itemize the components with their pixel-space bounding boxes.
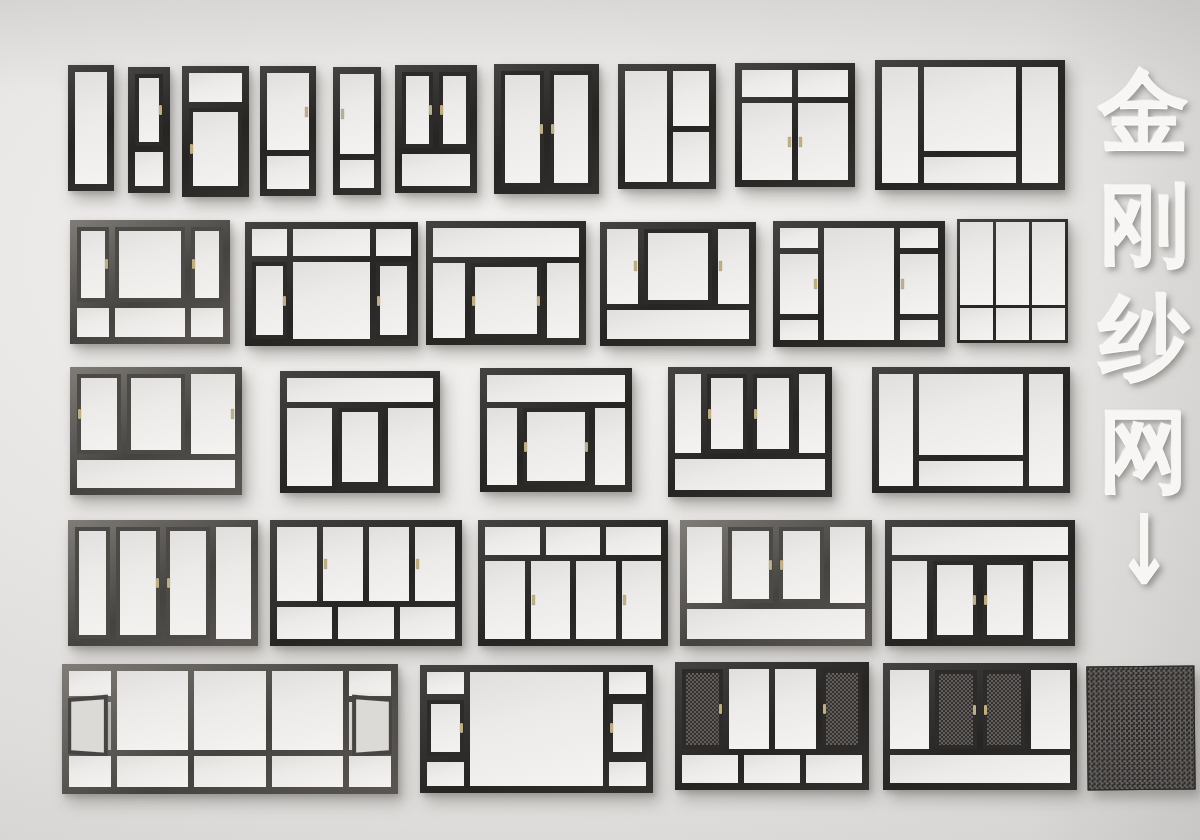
window-frame-22 [68,520,258,646]
window-handle [984,595,987,605]
glass-pane [673,132,709,182]
glass-pane [879,374,913,486]
glass-pane [77,227,109,302]
glass-pane [69,671,111,696]
window-frame-19 [480,368,632,492]
window-frame-18 [280,371,440,493]
vertical-title: 金 刚 纱 网 ↓ [1094,62,1194,581]
glass-pane [501,71,544,187]
window-frame-24 [478,520,668,646]
glass-pane [682,755,738,783]
window-handle [769,560,772,570]
glass-pane [338,408,383,486]
glass-pane [960,222,993,305]
glass-pane [687,527,722,603]
glass-pane [607,310,749,339]
window-handle [105,259,108,269]
window-handle [440,105,443,115]
glass-pane [609,672,646,694]
glass-pane [687,609,865,639]
title-char-1: 金 [1099,62,1189,159]
window-handle [460,723,463,733]
glass-pane [376,229,411,256]
glass-pane [798,70,848,97]
window-handle [416,559,419,569]
glass-pane [547,263,579,338]
glass-pane [780,320,818,340]
glass-pane [485,527,540,555]
glass-pane [272,756,344,787]
glass-pane [806,755,862,783]
glass-pane [189,108,242,190]
glass-pane [728,527,773,603]
glass-pane [470,672,602,786]
window-frame-10 [875,60,1065,190]
glass-pane [729,669,770,749]
glass-pane [487,408,517,485]
window-frame-20 [668,367,832,497]
glass-pane [116,527,160,639]
glass-pane [960,308,993,340]
glass-pane [135,152,163,186]
window-handle [532,595,535,605]
glass-pane [338,607,393,639]
window-frame-4 [260,66,316,196]
mesh-pane [935,670,977,749]
glass-pane [882,67,918,183]
glass-pane [625,71,667,182]
window-frame-8 [618,64,716,189]
window-handle [324,559,327,569]
window-handle [719,704,722,714]
glass-pane [644,229,712,304]
wall: 金 刚 纱 网 ↓ [0,0,1200,840]
glass-pane [1022,67,1058,183]
glass-pane [531,561,571,639]
window-frame-27 [62,664,398,794]
window-handle [540,124,543,134]
glass-pane [277,607,332,639]
glass-pane [890,755,1070,783]
window-handle [190,144,193,154]
glass-pane [267,73,309,150]
glass-pane [117,756,189,787]
glass-pane [340,160,374,188]
glass-pane [376,262,411,339]
glass-pane [675,459,825,490]
open-casement [349,702,391,750]
glass-pane [267,156,309,189]
glass-pane [252,229,287,256]
window-handle [551,124,554,134]
window-frame-30 [883,663,1077,790]
glass-pane [576,561,616,639]
glass-pane [1031,670,1070,749]
window-frame-14 [600,222,756,346]
window-handle [719,261,722,271]
window-handle [231,409,234,419]
window-handle [780,560,783,570]
glass-pane [996,222,1029,305]
window-frame-25 [680,520,872,646]
glass-pane [607,229,638,304]
window-frame-1 [68,65,114,191]
window-handle [192,259,195,269]
glass-pane [1033,561,1068,639]
mesh-pane [983,670,1025,749]
window-frame-21 [872,367,1070,493]
window-handle [973,595,976,605]
glass-pane [194,756,266,787]
glass-pane [983,561,1027,639]
glass-pane [744,755,800,783]
open-sash [352,694,392,757]
glass-pane [919,374,1022,455]
glass-pane [402,154,470,186]
window-frame-12 [245,222,418,346]
window-handle [537,296,540,306]
window-handle [610,723,613,733]
glass-pane [415,527,455,601]
glass-pane [439,72,470,148]
window-frame-29 [675,662,869,790]
window-frame-2 [128,67,170,193]
glass-pane [349,756,391,787]
glass-pane [191,227,223,302]
glass-pane [252,262,287,339]
window-handle [341,109,344,119]
mesh-swatch [1086,665,1195,790]
glass-pane [892,527,1068,555]
glass-pane [996,308,1029,340]
window-handle [623,595,626,605]
glass-pane [400,607,455,639]
glass-pane [900,320,938,340]
glass-pane [433,228,579,257]
glass-pane [753,374,793,453]
glass-pane [892,561,927,639]
window-frame-9 [735,63,855,187]
window-handle [283,296,286,306]
window-handle [973,705,976,715]
glass-pane [191,308,223,337]
window-frame-7 [494,64,599,194]
window-frame-17 [70,367,242,495]
glass-pane [77,374,121,454]
window-frame-15 [773,221,945,347]
glass-pane [293,262,369,339]
glass-pane [135,74,163,146]
window-frame-16 [957,219,1068,343]
glass-pane [900,254,938,314]
glass-pane [775,669,816,749]
glass-pane [433,263,465,338]
glass-pane [272,671,344,750]
glass-pane [69,756,111,787]
window-handle [788,137,791,147]
open-sash [68,694,108,757]
window-handle [377,296,380,306]
window-handle [823,704,826,714]
glass-pane [606,527,661,555]
glass-pane [900,228,938,248]
glass-pane [742,103,792,180]
window-frame-13 [426,221,586,345]
glass-pane [287,378,433,402]
window-handle [984,705,987,715]
window-handle [78,409,81,419]
glass-pane [609,762,646,786]
glass-pane [369,527,409,601]
glass-pane [824,228,894,340]
window-frame-23 [270,520,462,646]
glass-pane [487,375,625,402]
glass-pane [75,72,107,184]
glass-pane [1032,308,1065,340]
glass-pane [890,670,929,749]
glass-pane [427,700,464,755]
window-handle [754,409,757,419]
window-handle [524,442,527,452]
window-handle [472,296,475,306]
window-frame-5 [333,67,381,195]
glass-pane [595,408,625,485]
glass-pane [115,308,185,337]
glass-pane [194,671,266,750]
title-char-2: 刚 [1099,175,1189,272]
glass-pane [523,408,589,485]
window-frame-3 [182,66,249,197]
window-handle [429,105,432,115]
glass-pane [117,671,189,750]
glass-pane [780,228,818,248]
window-handle [156,578,159,588]
glass-pane [924,67,1016,151]
window-handle [167,578,170,588]
glass-pane [287,408,332,486]
glass-pane [277,527,317,601]
open-casement [69,702,111,750]
title-char-4: 网 [1099,402,1189,499]
glass-pane [216,527,251,639]
window-handle [585,442,588,452]
glass-pane [323,527,363,601]
glass-pane [485,561,525,639]
glass-pane [293,229,369,256]
window-handle [814,279,817,289]
glass-pane [388,408,433,486]
window-handle [159,105,162,115]
glass-pane [779,527,824,603]
window-handle [799,137,802,147]
glass-pane [550,71,593,187]
glass-pane [673,71,709,126]
glass-pane [1032,222,1065,305]
glass-pane [349,671,391,696]
glass-pane [830,527,865,603]
glass-pane [718,229,749,304]
glass-pane [427,762,464,786]
glass-pane [707,374,747,453]
glass-pane [1029,374,1063,486]
glass-pane [191,374,235,454]
glass-pane [471,263,541,338]
glass-pane [77,460,235,488]
mesh-pane [822,669,863,749]
glass-pane [622,561,662,639]
glass-pane [675,374,701,453]
glass-pane [127,374,185,454]
glass-pane [933,561,977,639]
glass-pane [609,700,646,755]
window-handle [901,279,904,289]
glass-pane [77,308,109,337]
window-handle [708,409,711,419]
glass-pane [780,254,818,314]
glass-pane [427,672,464,694]
window-frame-26 [885,520,1075,646]
glass-pane [742,70,792,97]
window-frame-11 [70,220,230,344]
glass-pane [115,227,185,302]
glass-pane [402,72,433,148]
mesh-pane [682,669,723,749]
window-frame-6 [395,65,477,193]
glass-pane [189,73,242,102]
glass-pane [919,461,1022,486]
window-handle [634,261,637,271]
down-arrow-icon: ↓ [1115,502,1172,598]
glass-pane [798,103,848,180]
window-handle [305,107,308,117]
glass-pane [166,527,210,639]
glass-pane [799,374,825,453]
glass-pane [340,74,374,154]
glass-pane [546,527,601,555]
glass-pane [924,157,1016,183]
window-frame-28 [420,665,653,793]
glass-pane [75,527,110,639]
title-char-3: 纱 [1099,288,1189,385]
